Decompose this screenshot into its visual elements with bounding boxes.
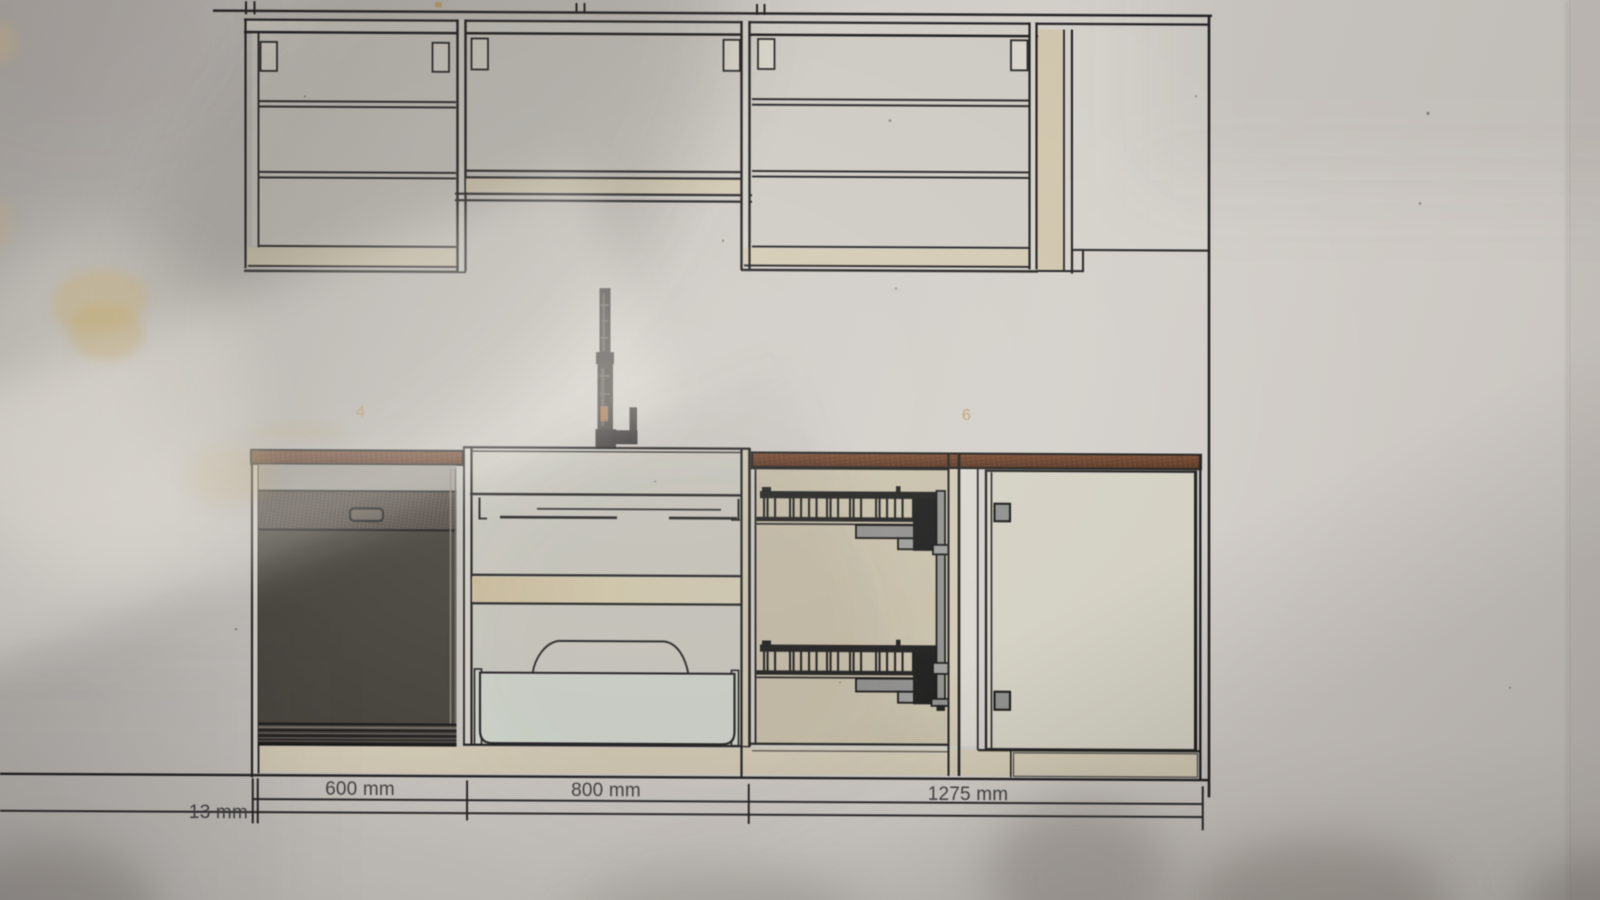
- svg-text:4: 4: [356, 404, 365, 421]
- svg-text:6: 6: [962, 407, 971, 424]
- svg-text:1275 mm: 1275 mm: [928, 784, 1009, 805]
- svg-text:13 mm: 13 mm: [189, 802, 248, 823]
- svg-text:600 mm: 600 mm: [325, 779, 395, 800]
- svg-text:800 mm: 800 mm: [571, 780, 641, 801]
